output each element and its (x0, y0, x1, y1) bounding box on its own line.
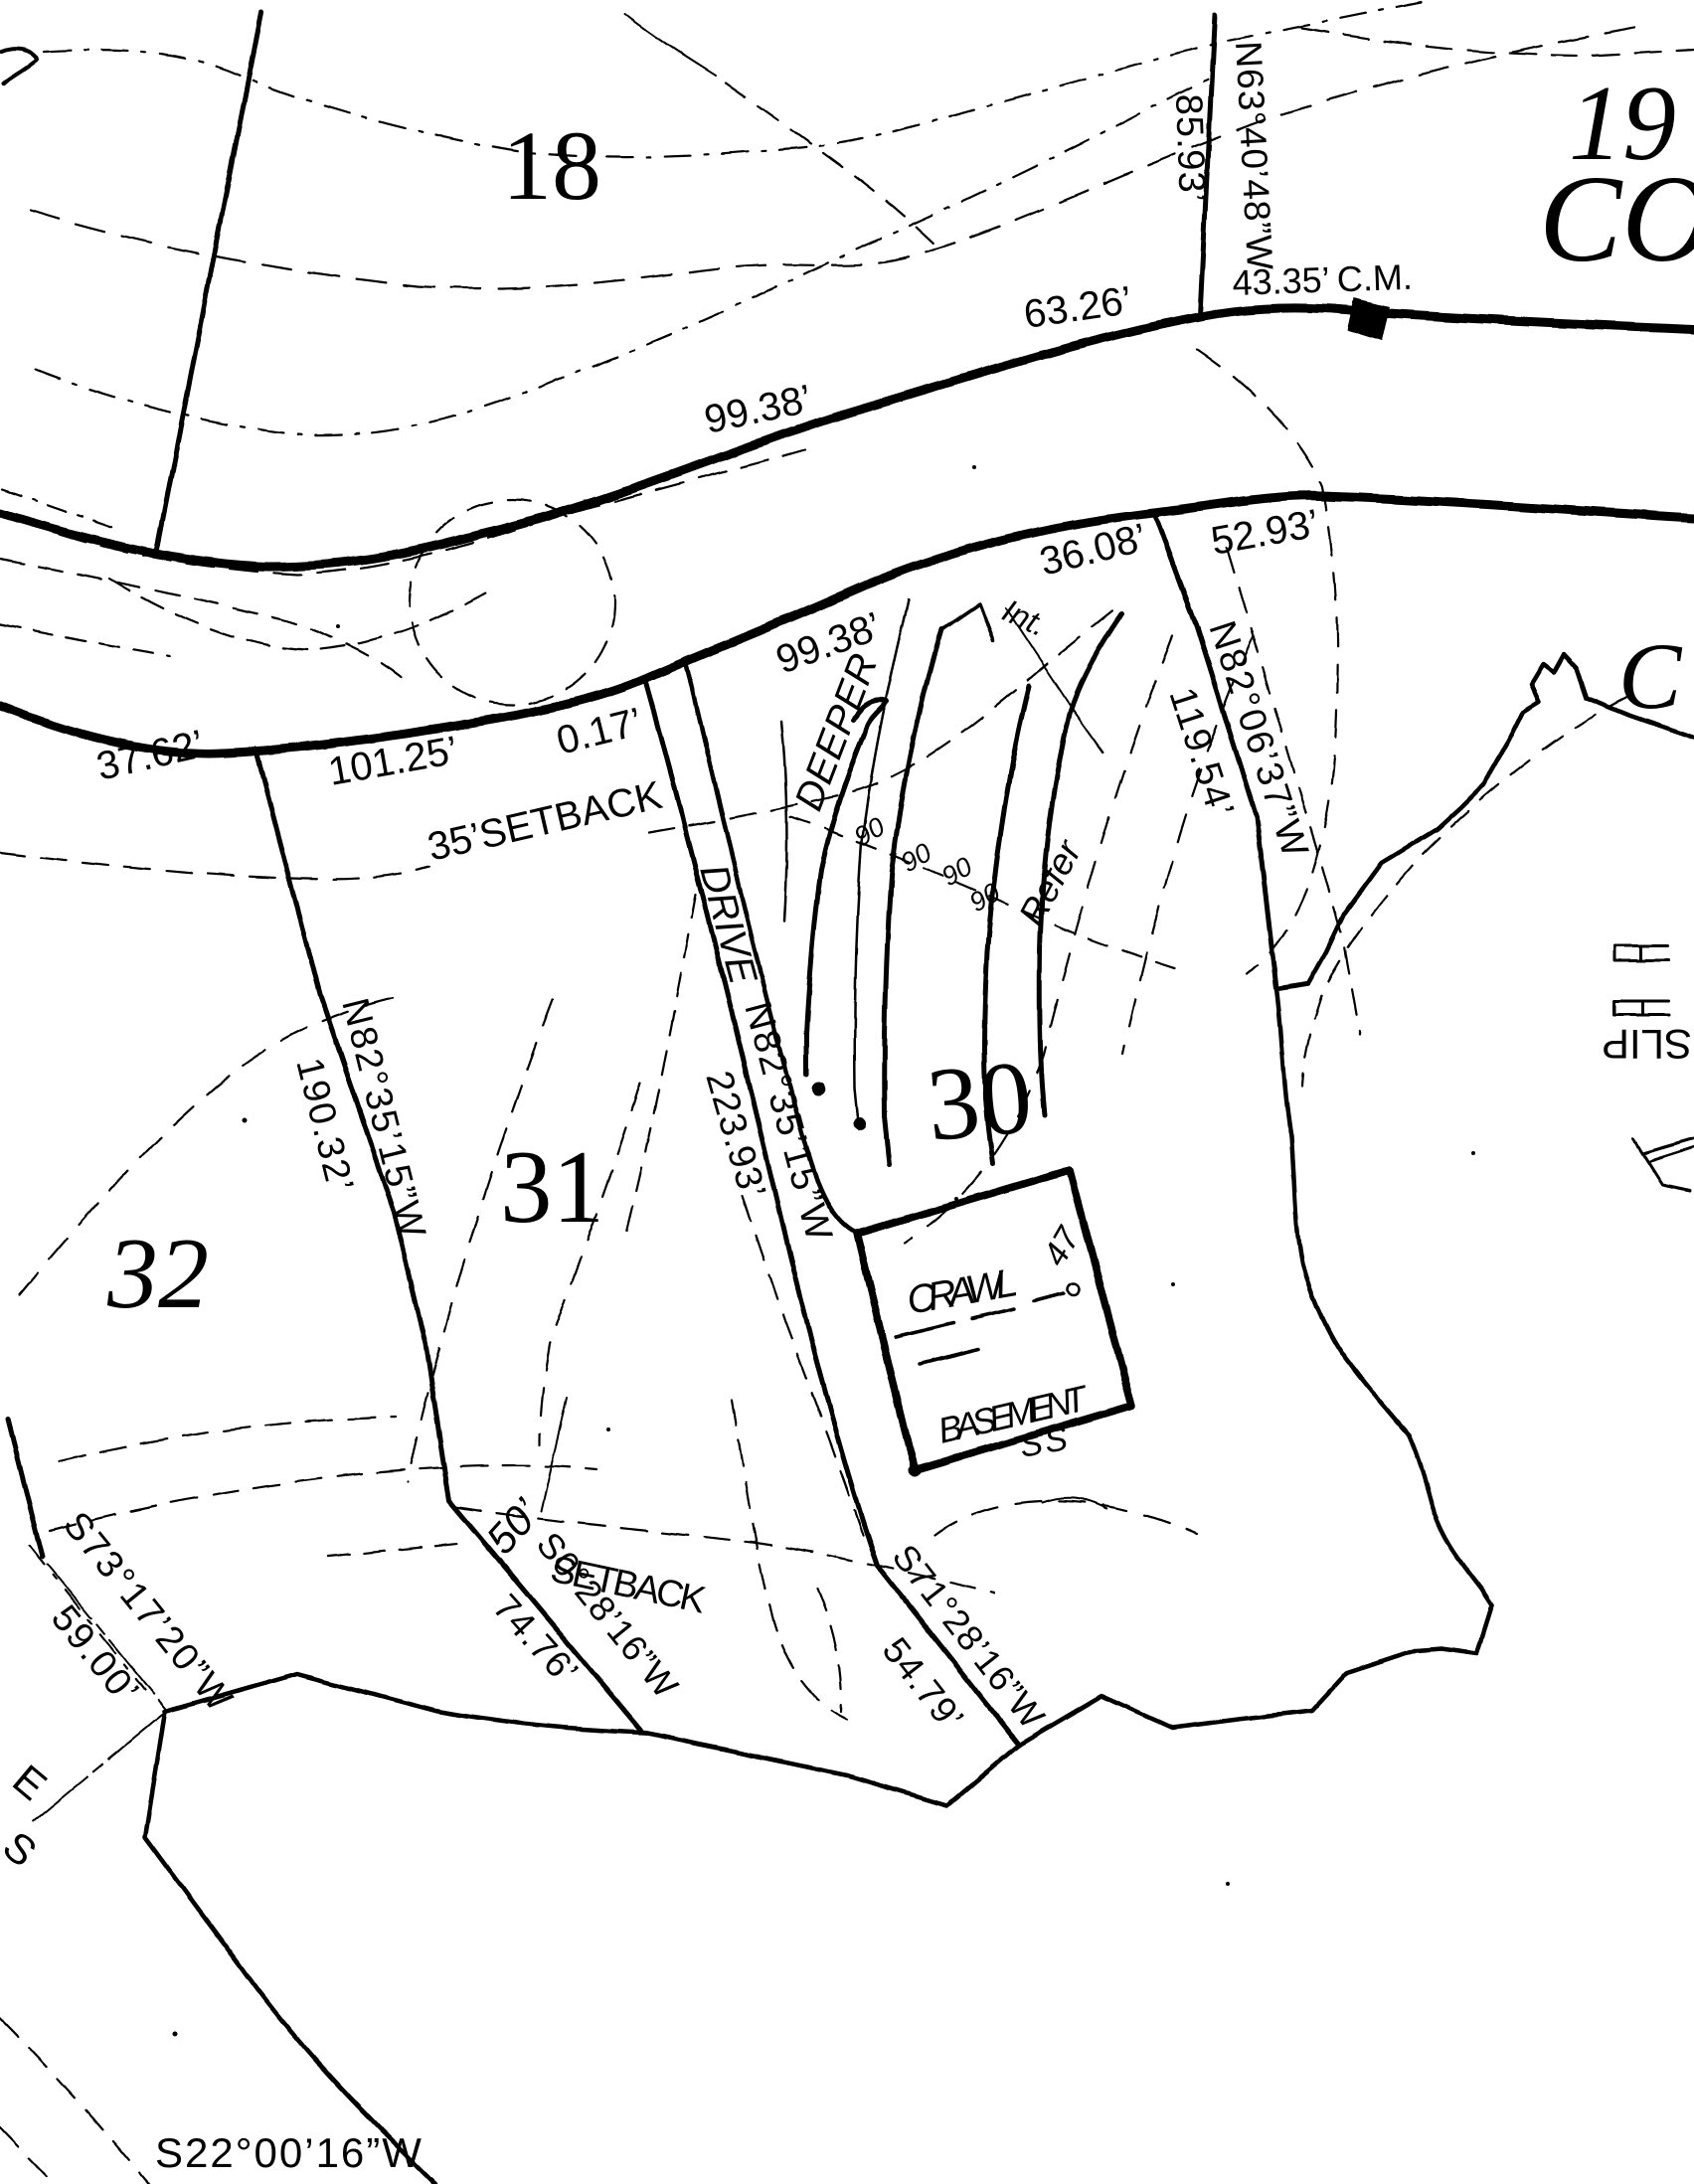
svg-text:S22°00’16”W: S22°00’16”W (155, 2129, 423, 2176)
svg-text:31: 31 (500, 1128, 604, 1245)
svg-text:85.93’: 85.93’ (1167, 93, 1213, 204)
svg-text:CO: CO (1539, 151, 1694, 288)
svg-text:32: 32 (106, 1218, 209, 1330)
svg-text:30: 30 (923, 1038, 1037, 1163)
svg-text:SLIP: SLIP (1602, 1021, 1692, 1068)
svg-text:C: C (1618, 623, 1683, 729)
svg-text:18: 18 (502, 110, 601, 221)
